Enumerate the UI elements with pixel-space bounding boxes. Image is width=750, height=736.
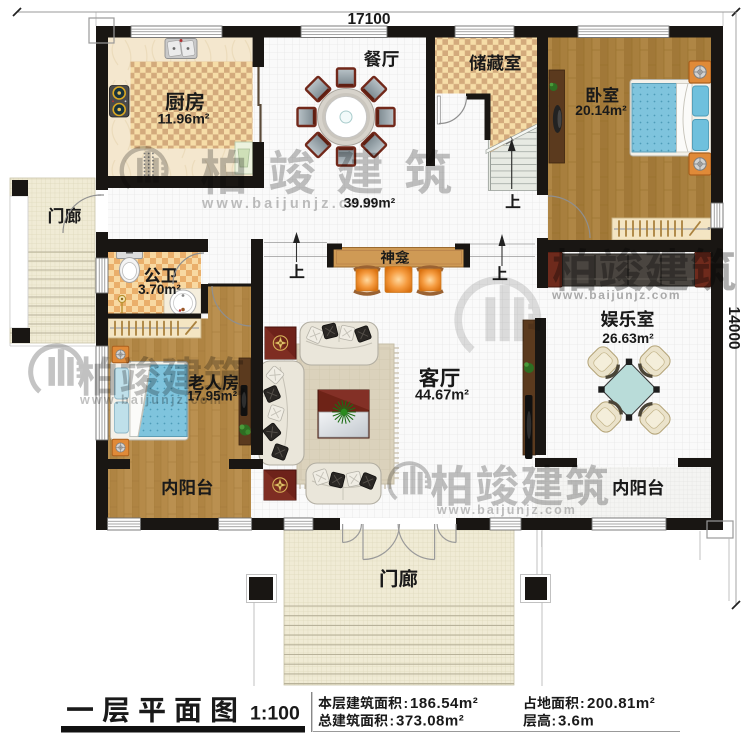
svg-text:44.67m²: 44.67m² [415, 388, 469, 404]
svg-text:14000: 14000 [725, 306, 742, 349]
svg-text:www.baijunjz.com: www.baijunjz.com [436, 503, 577, 517]
svg-text:www.baijunjz.com: www.baijunjz.com [551, 288, 681, 302]
svg-text:17100: 17100 [347, 11, 390, 28]
svg-text::: : [580, 695, 585, 711]
svg-text:186.54m²: 186.54m² [410, 695, 478, 712]
svg-text:11.96m²: 11.96m² [157, 112, 209, 128]
svg-text::: : [552, 713, 557, 729]
svg-text:20.14m²: 20.14m² [575, 103, 627, 118]
svg-text:www.baijunjz.com: www.baijunjz.com [79, 393, 223, 407]
svg-text:26.63m²: 26.63m² [602, 331, 654, 346]
svg-text:373.08m²: 373.08m² [396, 713, 464, 730]
svg-text:3.70m²: 3.70m² [138, 282, 181, 297]
svg-text::: : [390, 713, 395, 729]
svg-text::: : [404, 695, 409, 711]
svg-text:200.81m²: 200.81m² [587, 695, 655, 712]
svg-text:1:100: 1:100 [250, 703, 300, 725]
svg-text:3.6m: 3.6m [558, 713, 594, 730]
svg-text:www.baijunjz.com: www.baijunjz.com [201, 196, 378, 212]
